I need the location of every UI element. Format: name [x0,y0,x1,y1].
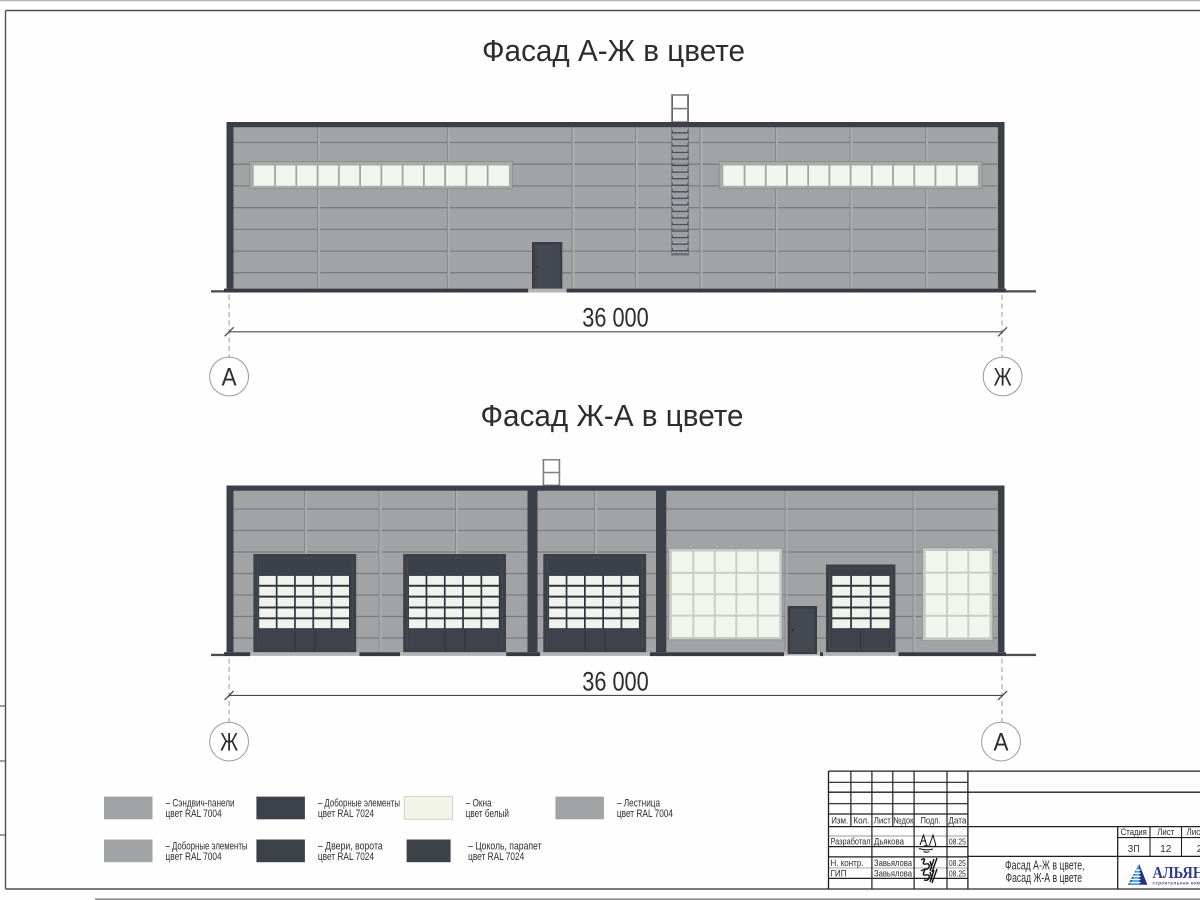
svg-text:цвет белый: цвет белый [466,808,509,820]
svg-text:Кол.: Кол. [853,816,869,826]
svg-text:Изм.: Изм. [831,816,848,826]
svg-text:36 000: 36 000 [582,302,649,332]
svg-text:08.25: 08.25 [949,837,966,847]
svg-text:08.25: 08.25 [949,858,966,868]
svg-text:цвет RAL 7004: цвет RAL 7004 [617,808,673,820]
svg-text:12: 12 [1160,843,1171,855]
svg-text:строительная компания: строительная компания [1153,881,1200,886]
svg-text:цвет RAL 7024: цвет RAL 7024 [318,851,374,863]
svg-text:А: А [222,363,237,391]
svg-text:Фасад Ж-А в цвете: Фасад Ж-А в цвете [481,398,744,433]
svg-text:Лист: Лист [1157,827,1174,837]
svg-text:цвет RAL 7024: цвет RAL 7024 [468,851,524,863]
svg-text:Листов: Листов [1187,827,1200,837]
svg-text:08.25: 08.25 [949,868,966,878]
svg-text:Стадия: Стадия [1121,827,1147,837]
svg-text:Подп.: Подп. [921,816,941,826]
svg-text:цвет RAL 7004: цвет RAL 7004 [166,851,222,863]
svg-text:№док: №док [893,816,914,826]
svg-text:Ж: Ж [220,728,238,756]
svg-text:Ж: Ж [994,363,1012,391]
svg-text:Фасад А-Ж в цвете: Фасад А-Ж в цвете [482,33,745,68]
svg-text:АЛЬЯНС: АЛЬЯНС [1153,863,1200,882]
svg-text:Разработал: Разработал [831,837,871,847]
svg-text:цвет RAL 7004: цвет RAL 7004 [166,808,222,820]
svg-text:36 000: 36 000 [582,667,649,697]
svg-text:Дьякова: Дьякова [874,837,904,847]
svg-text:ГИП: ГИП [831,868,847,878]
svg-text:Завьялова: Завьялова [874,868,912,878]
svg-text:цвет RAL 7024: цвет RAL 7024 [318,808,374,820]
svg-text:А: А [994,728,1009,756]
svg-text:Завьялова: Завьялова [874,858,912,868]
svg-text:Лист: Лист [874,816,892,826]
svg-text:Дата: Дата [948,816,967,826]
svg-text:2: 2 [1197,843,1200,855]
svg-text:ЗП: ЗП [1128,843,1140,855]
svg-text:Фасад Ж-А в цвете: Фасад Ж-А в цвете [1006,871,1083,885]
svg-text:Н. контр.: Н. контр. [831,858,864,868]
